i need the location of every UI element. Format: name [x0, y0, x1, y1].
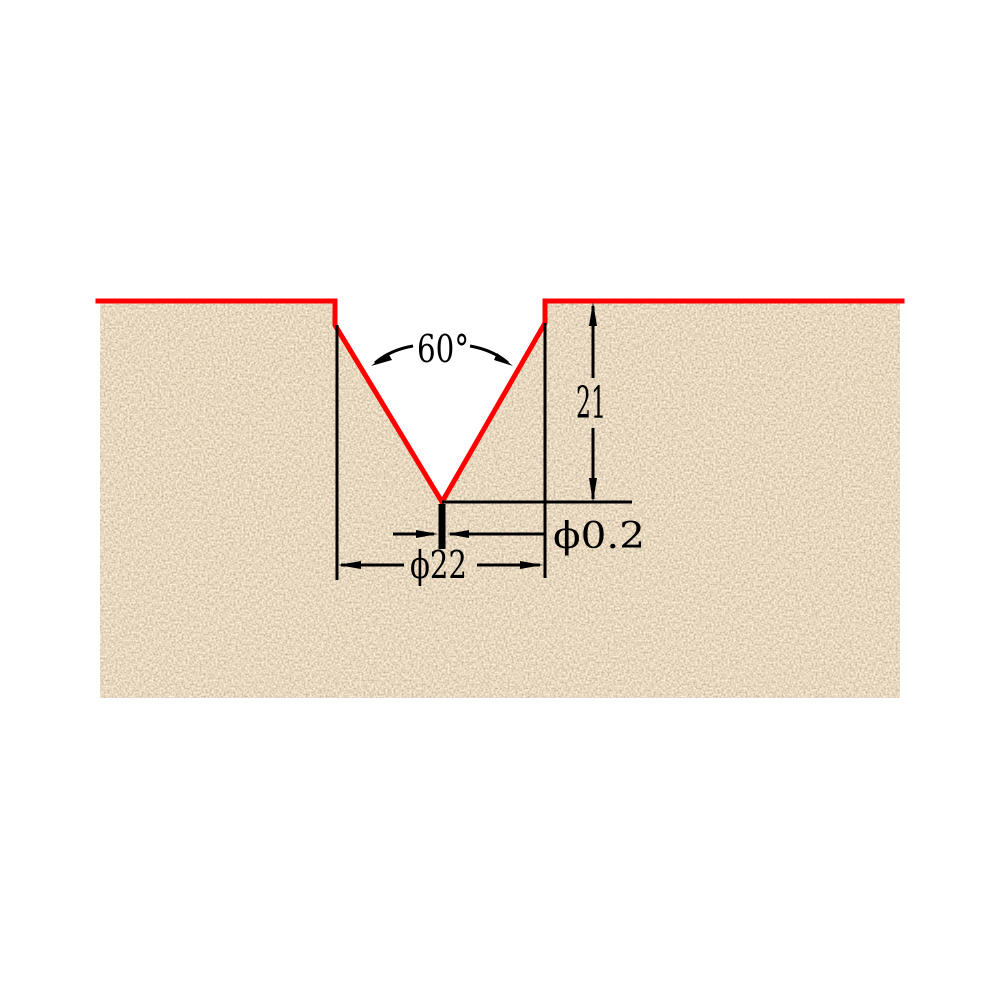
angle-arrowhead-left [371, 353, 392, 366]
angle-arrowhead-right [494, 353, 513, 366]
tip-diameter-label: ϕ0.2 [553, 516, 645, 557]
v-groove-dimension-diagram: 60° 21 ϕ0.2 ϕ22 [0, 0, 1000, 1000]
depth-label: 21 [576, 378, 606, 429]
angle-label: 60° [417, 327, 469, 371]
width-label: ϕ22 [410, 543, 467, 587]
diagram-canvas: 60° 21 ϕ0.2 ϕ22 [0, 0, 1000, 1000]
